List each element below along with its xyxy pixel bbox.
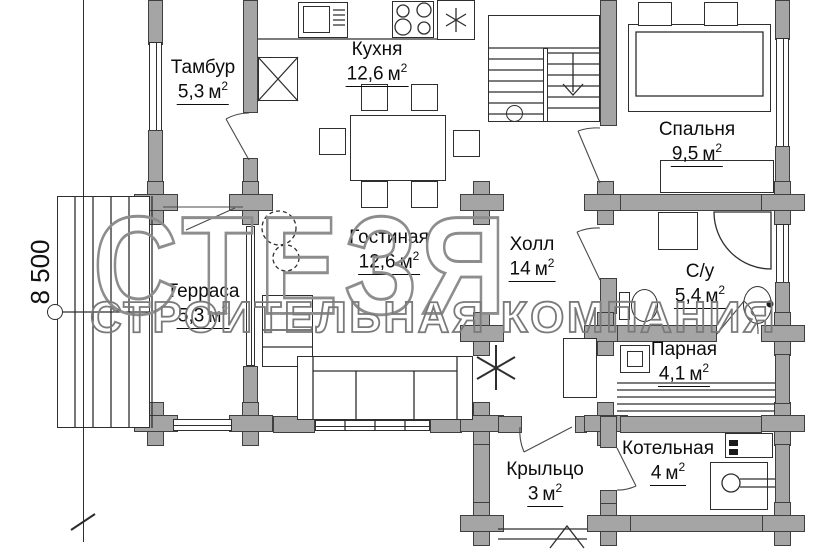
room-label-sauna: Парная 4,1м2 [651, 339, 717, 387]
room-name: Котельная [622, 438, 714, 460]
room-area: 12,6м2 [358, 249, 421, 275]
room-area: 12,6м2 [346, 61, 409, 87]
floor-plan: Тамбур 5,3м2 Кухня 12,6м2 Спальня 9,5м2 … [0, 0, 825, 550]
room-area: 5,3м2 [177, 303, 229, 329]
vent-shaft-cross [258, 57, 298, 101]
kitchen-counter [258, 3, 437, 39]
dimension-marks [63, 312, 150, 530]
room-label-boiler: Котельная 4м2 [622, 438, 714, 486]
room-area: 4,1м2 [658, 361, 710, 387]
boiler-details [722, 440, 775, 492]
staircase-steps [488, 48, 600, 114]
room-name: Кухня [346, 39, 409, 61]
dimension-label: 8 500 [25, 217, 55, 327]
porch-steps [498, 526, 587, 548]
room-label-terrace: Терраса 5,3м2 [167, 281, 240, 329]
room-name: Гостиная [349, 227, 429, 249]
room-area: 5,3м2 [177, 79, 229, 105]
coat-rack-icon [477, 345, 515, 390]
washbasin-tap [767, 301, 774, 308]
room-area: 3м2 [527, 481, 563, 507]
doors [163, 113, 758, 490]
plant-icon [262, 211, 299, 271]
room-name: Парная [651, 339, 717, 361]
room-name: Холл [509, 234, 556, 256]
room-label-kitchen: Кухня 12,6м2 [346, 39, 409, 87]
room-area: 4м2 [650, 460, 686, 486]
window-mullions [345, 420, 405, 431]
room-area: 9,5м2 [671, 141, 723, 167]
tv-cabinet-lines [262, 330, 313, 347]
fridge-icon [446, 8, 466, 32]
room-name: С/у [674, 261, 726, 283]
room-label-living: Гостиная 12,6м2 [349, 227, 429, 275]
room-label-porch: Крыльцо 3м2 [506, 459, 584, 507]
room-area: 5,4м2 [674, 283, 726, 309]
room-label-bedroom: Спальня 9,5м2 [659, 119, 735, 167]
room-label-tambur: Тамбур 5,3м2 [171, 57, 236, 105]
room-area: 14м2 [509, 256, 556, 282]
room-label-bathroom: С/у 5,4м2 [674, 261, 726, 309]
room-name: Крыльцо [506, 459, 584, 481]
sauna-benches [617, 383, 775, 411]
room-name: Тамбур [171, 57, 236, 79]
room-name: Терраса [167, 281, 240, 303]
sofa-lines [313, 356, 457, 420]
room-name: Спальня [659, 119, 735, 141]
room-label-hall: Холл 14м2 [509, 234, 556, 282]
bed-lines [636, 32, 763, 96]
